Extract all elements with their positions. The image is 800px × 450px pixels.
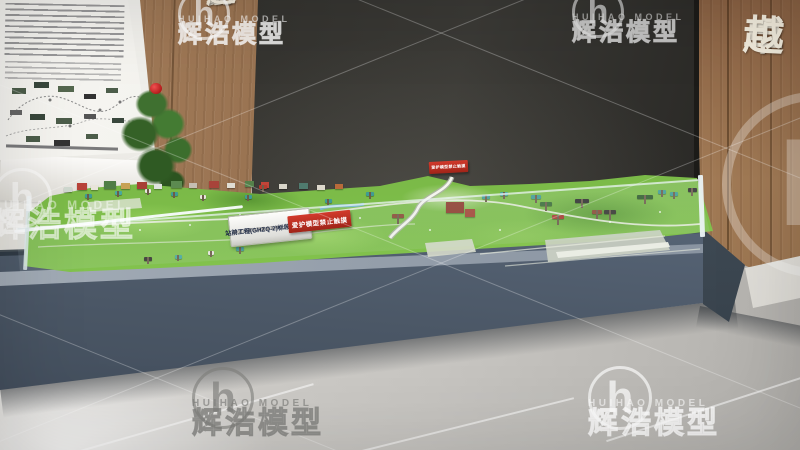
- watermark-en: HUIHAO MODEL: [572, 12, 685, 22]
- sign-stick: [202, 195, 203, 201]
- model-structure: [171, 181, 182, 188]
- model-structure: [91, 185, 98, 190]
- warning-banner-small: 爱护模型禁止触摸: [429, 160, 469, 174]
- sign-stick: [173, 192, 174, 198]
- model-structure: [77, 183, 87, 190]
- watermark-en: HUIHAO MODEL: [0, 198, 128, 212]
- model-structure: [121, 183, 130, 189]
- model-structure: [227, 183, 235, 188]
- watermark-en: HUIHAO MODEL: [192, 398, 312, 409]
- sign-stick: [117, 191, 118, 197]
- calligraphy-char: 越: [742, 9, 786, 63]
- watermark-en: HUIHAO MODEL: [588, 398, 708, 409]
- sign-stick: [369, 192, 370, 199]
- model-structure: [104, 181, 116, 189]
- sign-stick: [327, 199, 328, 205]
- model-structure: [299, 183, 308, 189]
- showroom-photo: 勇 于 跨 越 卓 越: [0, 0, 800, 450]
- sign-stick: [147, 189, 148, 195]
- sign-stick: [247, 195, 248, 201]
- model-structure: [317, 185, 325, 190]
- watermark-en: HUIHAO MODEL: [178, 14, 291, 24]
- model-structure: [209, 181, 219, 188]
- model-structure: [137, 182, 147, 189]
- model-structure: [335, 184, 343, 189]
- model-structure: [189, 183, 197, 188]
- model-structure: [154, 184, 162, 189]
- model-structure: [279, 184, 287, 189]
- model-structure: [64, 187, 72, 192]
